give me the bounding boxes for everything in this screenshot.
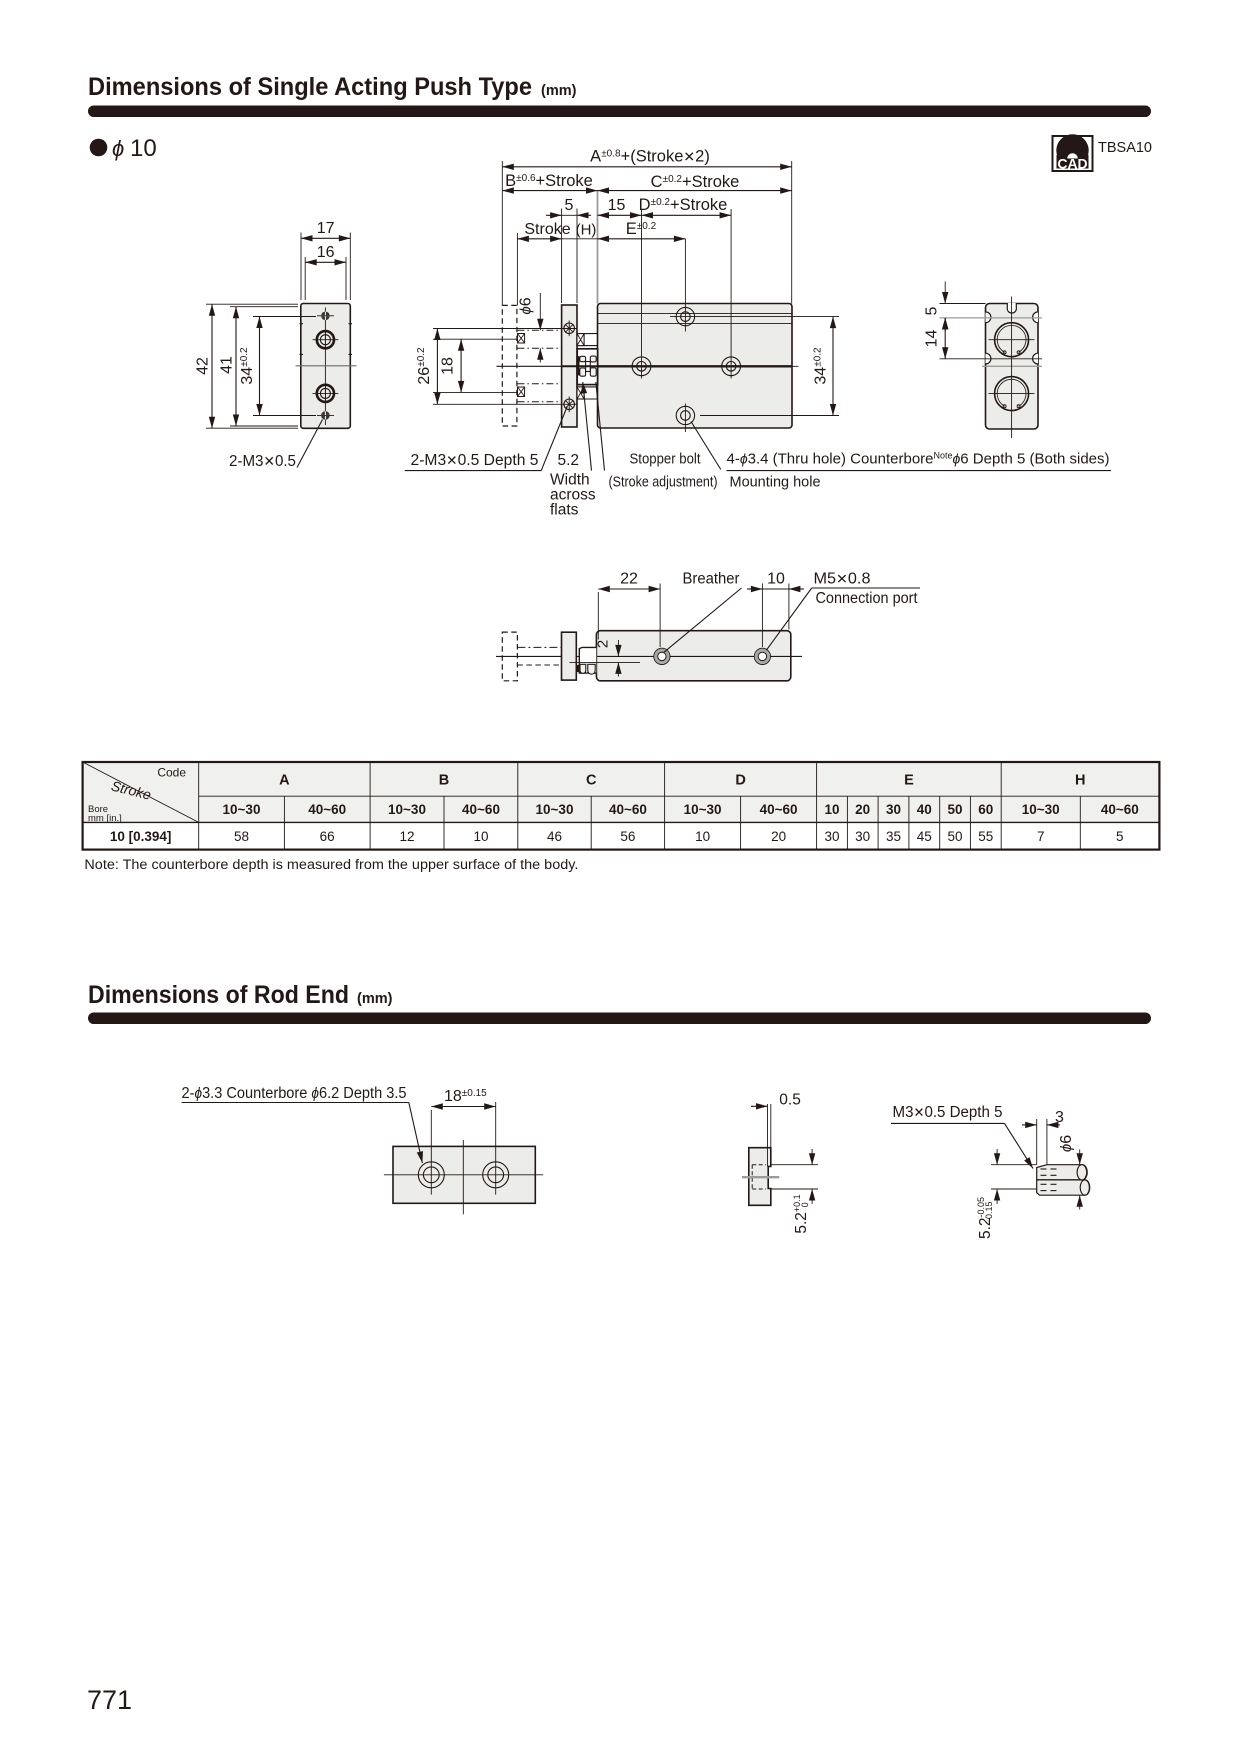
svg-text:40~60: 40~60 [609, 802, 647, 817]
svg-text:58: 58 [234, 829, 249, 844]
svg-text:14: 14 [924, 330, 941, 348]
svg-text:flats: flats [550, 502, 579, 519]
svg-text:D±0.2+Stroke: D±0.2+Stroke [639, 196, 728, 214]
svg-text:46: 46 [547, 829, 562, 844]
svg-text:(mm): (mm) [541, 83, 577, 99]
svg-text:Mounting hole: Mounting hole [730, 474, 821, 491]
svg-text:TBSA10: TBSA10 [1098, 139, 1152, 156]
svg-text:40: 40 [917, 802, 932, 817]
svg-text:771: 771 [87, 1685, 132, 1715]
svg-text:10~30: 10~30 [223, 802, 261, 817]
svg-text:10: 10 [824, 802, 839, 817]
svg-text:Connection port: Connection port [816, 590, 919, 607]
svg-text:17: 17 [317, 220, 335, 237]
svg-text:Dimensions of Single Acting Pu: Dimensions of Single Acting Push Type [88, 73, 532, 101]
svg-text:5.2+0.10: 5.2+0.10 [792, 1194, 810, 1233]
svg-text:30: 30 [886, 802, 901, 817]
svg-text:60: 60 [978, 802, 993, 817]
svg-text:ϕ: ϕ [112, 136, 124, 161]
svg-text:30: 30 [855, 829, 870, 844]
svg-text:Dimensions of Rod End: Dimensions of Rod End [88, 981, 349, 1009]
svg-text:56: 56 [620, 829, 635, 844]
svg-text:Note: The counterbore depth is: Note: The counterbore depth is measured … [84, 857, 578, 872]
svg-text:34±0.2: 34±0.2 [813, 347, 830, 385]
svg-text:ϕ6: ϕ6 [518, 297, 535, 314]
svg-text:55: 55 [978, 829, 993, 844]
svg-text:42: 42 [195, 357, 212, 375]
svg-text:A±0.8+(Stroke✕2): A±0.8+(Stroke✕2) [590, 148, 710, 166]
svg-text:A: A [279, 773, 290, 789]
svg-text:D: D [735, 773, 745, 789]
svg-text:ϕ6: ϕ6 [1058, 1135, 1075, 1152]
svg-text:40~60: 40~60 [1101, 802, 1139, 817]
svg-text:40~60: 40~60 [760, 802, 798, 817]
svg-text:45: 45 [917, 829, 932, 844]
svg-text:mm [in.]: mm [in.] [88, 813, 122, 824]
svg-text:M5✕0.8: M5✕0.8 [814, 571, 871, 588]
svg-text:2-M3✕0.5: 2-M3✕0.5 [229, 453, 296, 470]
svg-text:10: 10 [473, 829, 488, 844]
svg-text:(H): (H) [576, 222, 597, 239]
svg-text:Stopper bolt: Stopper bolt [630, 452, 701, 468]
svg-text:0.5: 0.5 [779, 1092, 801, 1109]
svg-text:5: 5 [565, 197, 574, 214]
svg-text:30: 30 [824, 829, 839, 844]
svg-text:5: 5 [1116, 829, 1124, 844]
svg-text:3: 3 [1055, 1109, 1064, 1126]
svg-text:20: 20 [855, 802, 870, 817]
svg-text:(mm): (mm) [357, 991, 393, 1007]
svg-text:40~60: 40~60 [462, 802, 500, 817]
svg-text:10~30: 10~30 [1022, 802, 1060, 817]
svg-text:2: 2 [595, 640, 612, 648]
svg-text:50: 50 [947, 802, 962, 817]
svg-text:5.2-0.05-0.15: 5.2-0.05-0.15 [976, 1197, 994, 1239]
svg-text:Stroke: Stroke [524, 221, 570, 238]
svg-text:34±0.2: 34±0.2 [239, 347, 256, 385]
svg-text:Code: Code [157, 766, 186, 780]
svg-text:10: 10 [767, 571, 785, 588]
svg-text:H: H [1075, 773, 1085, 789]
svg-text:10~30: 10~30 [684, 802, 722, 817]
svg-text:12: 12 [399, 829, 414, 844]
svg-text:C: C [586, 773, 597, 789]
svg-text:M3✕0.5 Depth 5: M3✕0.5 Depth 5 [893, 1104, 1003, 1121]
svg-text:18: 18 [440, 357, 457, 375]
svg-text:CAD: CAD [1057, 156, 1087, 172]
svg-text:Breather: Breather [683, 571, 740, 588]
svg-text:C±0.2+Stroke: C±0.2+Stroke [651, 173, 740, 191]
svg-text:10~30: 10~30 [536, 802, 574, 817]
svg-text:15: 15 [608, 197, 626, 214]
svg-text:B: B [439, 773, 449, 789]
svg-text:18±0.15: 18±0.15 [444, 1088, 487, 1105]
svg-text:16: 16 [317, 244, 335, 261]
svg-text:2-ϕ3.3 Counterbore ϕ6.2 Depth: 2-ϕ3.3 Counterbore ϕ6.2 Depth 3.5 [182, 1085, 407, 1102]
svg-text:41: 41 [219, 356, 236, 374]
svg-text:E: E [904, 773, 914, 789]
svg-text:10~30: 10~30 [388, 802, 426, 817]
svg-text:7: 7 [1037, 829, 1045, 844]
svg-text:66: 66 [320, 829, 335, 844]
svg-text:5: 5 [924, 306, 941, 315]
svg-text:10 [0.394]: 10 [0.394] [110, 829, 172, 844]
svg-text:B±0.6+Stroke: B±0.6+Stroke [505, 172, 593, 190]
svg-text:4-ϕ3.4 (Thru hole) Counterbore: 4-ϕ3.4 (Thru hole) CounterboreNoteϕ6 Dep… [727, 451, 1110, 468]
svg-text:22: 22 [620, 571, 638, 588]
svg-text:20: 20 [771, 829, 786, 844]
svg-text:(Stroke adjustment): (Stroke adjustment) [609, 475, 718, 491]
svg-text:2-M3✕0.5 Depth 5: 2-M3✕0.5 Depth 5 [411, 452, 539, 469]
svg-text:5.2: 5.2 [558, 452, 580, 469]
svg-text:40~60: 40~60 [308, 802, 346, 817]
svg-text:10: 10 [130, 135, 157, 162]
svg-text:10: 10 [695, 829, 710, 844]
svg-text:50: 50 [947, 829, 962, 844]
svg-text:26±0.2: 26±0.2 [416, 347, 433, 385]
svg-text:35: 35 [886, 829, 901, 844]
